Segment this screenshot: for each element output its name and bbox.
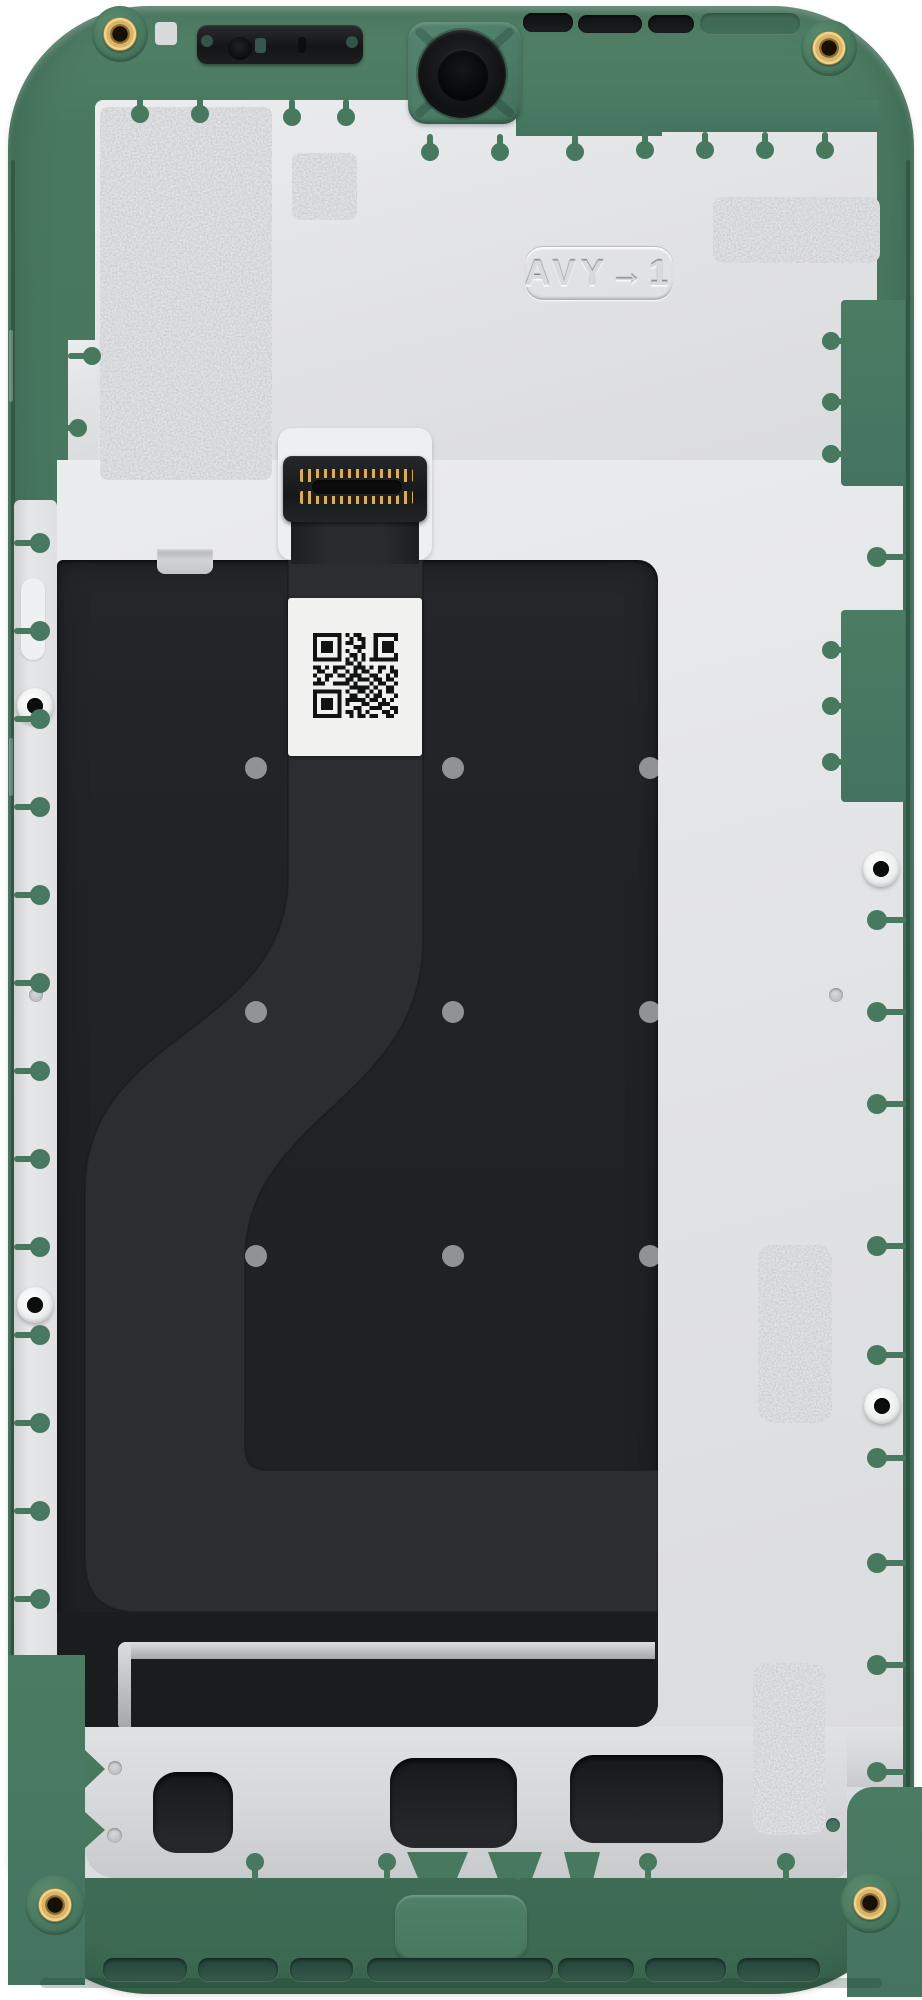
adhesive-dot	[442, 757, 464, 779]
embossed-label-text: AVY→1	[525, 254, 674, 294]
shield-edge-strip	[118, 1642, 655, 1659]
qr-label	[288, 598, 422, 756]
camera-lens-inner	[437, 49, 489, 101]
bottom-slot	[737, 1958, 820, 1981]
top-notch-window	[155, 22, 177, 45]
gold-screw-bottom-right	[853, 1886, 887, 1920]
adhesive-dot	[639, 757, 658, 779]
adhesive-dot	[245, 1001, 267, 1023]
frame-right-block-lower	[841, 610, 905, 802]
frame-right-block-upper	[841, 300, 905, 486]
qr-modules	[313, 633, 398, 718]
shield-plate-upper	[95, 100, 877, 462]
connector-socket-slot	[310, 478, 404, 496]
bottom-slot	[367, 1958, 553, 1981]
bracket-cutout-a	[153, 1772, 233, 1853]
bracket-cutout-c	[570, 1755, 723, 1843]
embossed-label-plate: AVY→1	[525, 247, 673, 300]
frame-right-seam	[906, 160, 910, 1850]
shield-plate-step	[68, 340, 98, 462]
adhesive-dot	[442, 1001, 464, 1023]
shield-edge-leg	[118, 1642, 131, 1728]
adhesive-dot	[442, 1245, 464, 1267]
proximity-sensor	[228, 37, 252, 60]
left-rail	[14, 500, 57, 1665]
frame-top-right-shelf	[655, 100, 879, 132]
frame-bottom-left-wall	[8, 1655, 85, 1985]
white-screw-right-1-hole	[873, 861, 889, 877]
gold-screw-bottom-left	[38, 1888, 72, 1922]
bottom-slot	[198, 1958, 278, 1981]
frame-camera-shelf	[516, 100, 662, 136]
sensor-square-hole	[255, 38, 266, 53]
sensor-hole-right	[346, 36, 358, 48]
adhesive-dot	[639, 1001, 658, 1023]
bracket-green-hole	[826, 1818, 840, 1832]
bracket-cutout-b	[390, 1758, 517, 1848]
sensor-slot-hole	[298, 37, 306, 53]
bottom-slot	[103, 1958, 187, 1981]
frame-groove	[700, 13, 800, 35]
gold-screw-top-left	[103, 17, 137, 51]
bottom-bracket-right	[847, 1727, 903, 1787]
bottom-plateau	[395, 1895, 527, 1961]
antenna-slot-2	[578, 15, 642, 33]
bottom-slot	[290, 1958, 353, 1981]
side-button-mark-upper	[9, 330, 13, 402]
plate-pinhole-right	[829, 988, 843, 1002]
white-screw-left-2-hole	[27, 1297, 43, 1313]
display-back-panel	[57, 560, 658, 1727]
side-button-mark-lower	[9, 738, 13, 796]
panel-alignment-notch	[157, 549, 213, 574]
bottom-slot	[558, 1958, 634, 1981]
side-button-window	[21, 578, 45, 660]
panel-bottom-zone	[57, 1612, 658, 1727]
gold-screw-top-right	[812, 31, 846, 65]
sensor-bar	[197, 25, 363, 64]
qr-code	[313, 633, 398, 718]
bottom-slot	[645, 1958, 726, 1981]
adhesive-dot	[245, 1245, 267, 1267]
antenna-slot-1	[523, 13, 573, 32]
white-screw-left-1-hole	[27, 698, 43, 714]
adhesive-dot	[245, 757, 267, 779]
white-screw-right-2-hole	[874, 1398, 890, 1414]
sensor-hole-left	[201, 35, 213, 47]
bracket-hole-1	[108, 1761, 122, 1775]
plate-pinhole-left	[29, 988, 43, 1002]
adhesive-dot	[639, 1245, 658, 1267]
antenna-slot-3	[648, 15, 694, 33]
bracket-hole-2	[107, 1828, 122, 1843]
midframe-photo: AVY→1	[0, 0, 922, 2000]
